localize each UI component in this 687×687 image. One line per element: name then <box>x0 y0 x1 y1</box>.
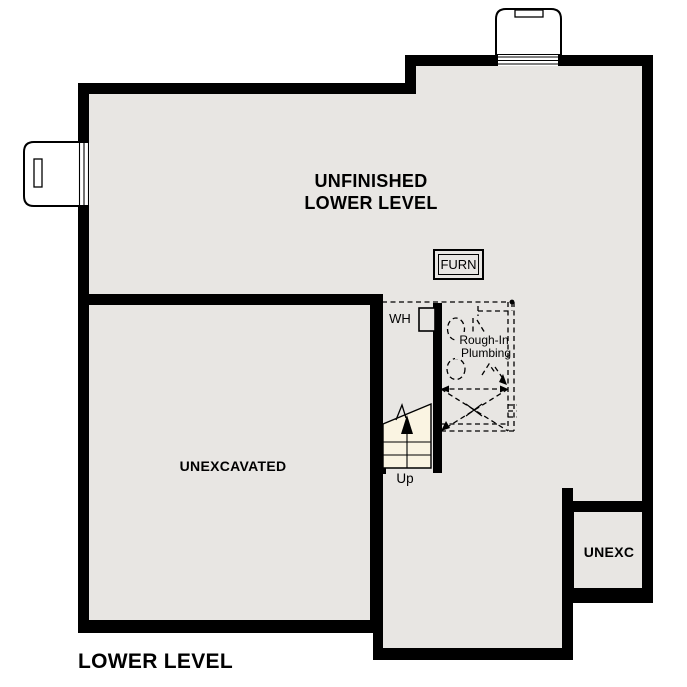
stairs-up-label: Up <box>396 471 413 486</box>
unexc-label: UNEXC <box>584 544 635 560</box>
unexcavated-label: UNEXCAVATED <box>180 458 287 474</box>
floor-plan-drawing: FURN WH <box>0 0 687 687</box>
page-title: LOWER LEVEL <box>78 650 233 673</box>
window-well-left <box>24 142 79 206</box>
furnace-label: FURN <box>440 257 476 272</box>
plumbing-label-line2: Plumbing <box>461 346 511 360</box>
floor-plan-page: FURN WH <box>0 0 687 687</box>
water-heater-unit <box>419 308 435 331</box>
window-well-left-outline <box>24 142 79 206</box>
unfinished-lower-level-label-line2: LOWER LEVEL <box>304 193 437 213</box>
window-well-top-ladder <box>515 10 543 17</box>
window-well-top <box>496 9 561 55</box>
water-heater-label: WH <box>389 311 411 326</box>
unfinished-lower-level-label-line1: UNFINISHED <box>314 171 427 191</box>
furnace: FURN <box>434 250 483 279</box>
window-top <box>498 55 558 66</box>
plumbing-label-line1: Rough-In <box>459 333 508 347</box>
window-left <box>78 143 90 205</box>
